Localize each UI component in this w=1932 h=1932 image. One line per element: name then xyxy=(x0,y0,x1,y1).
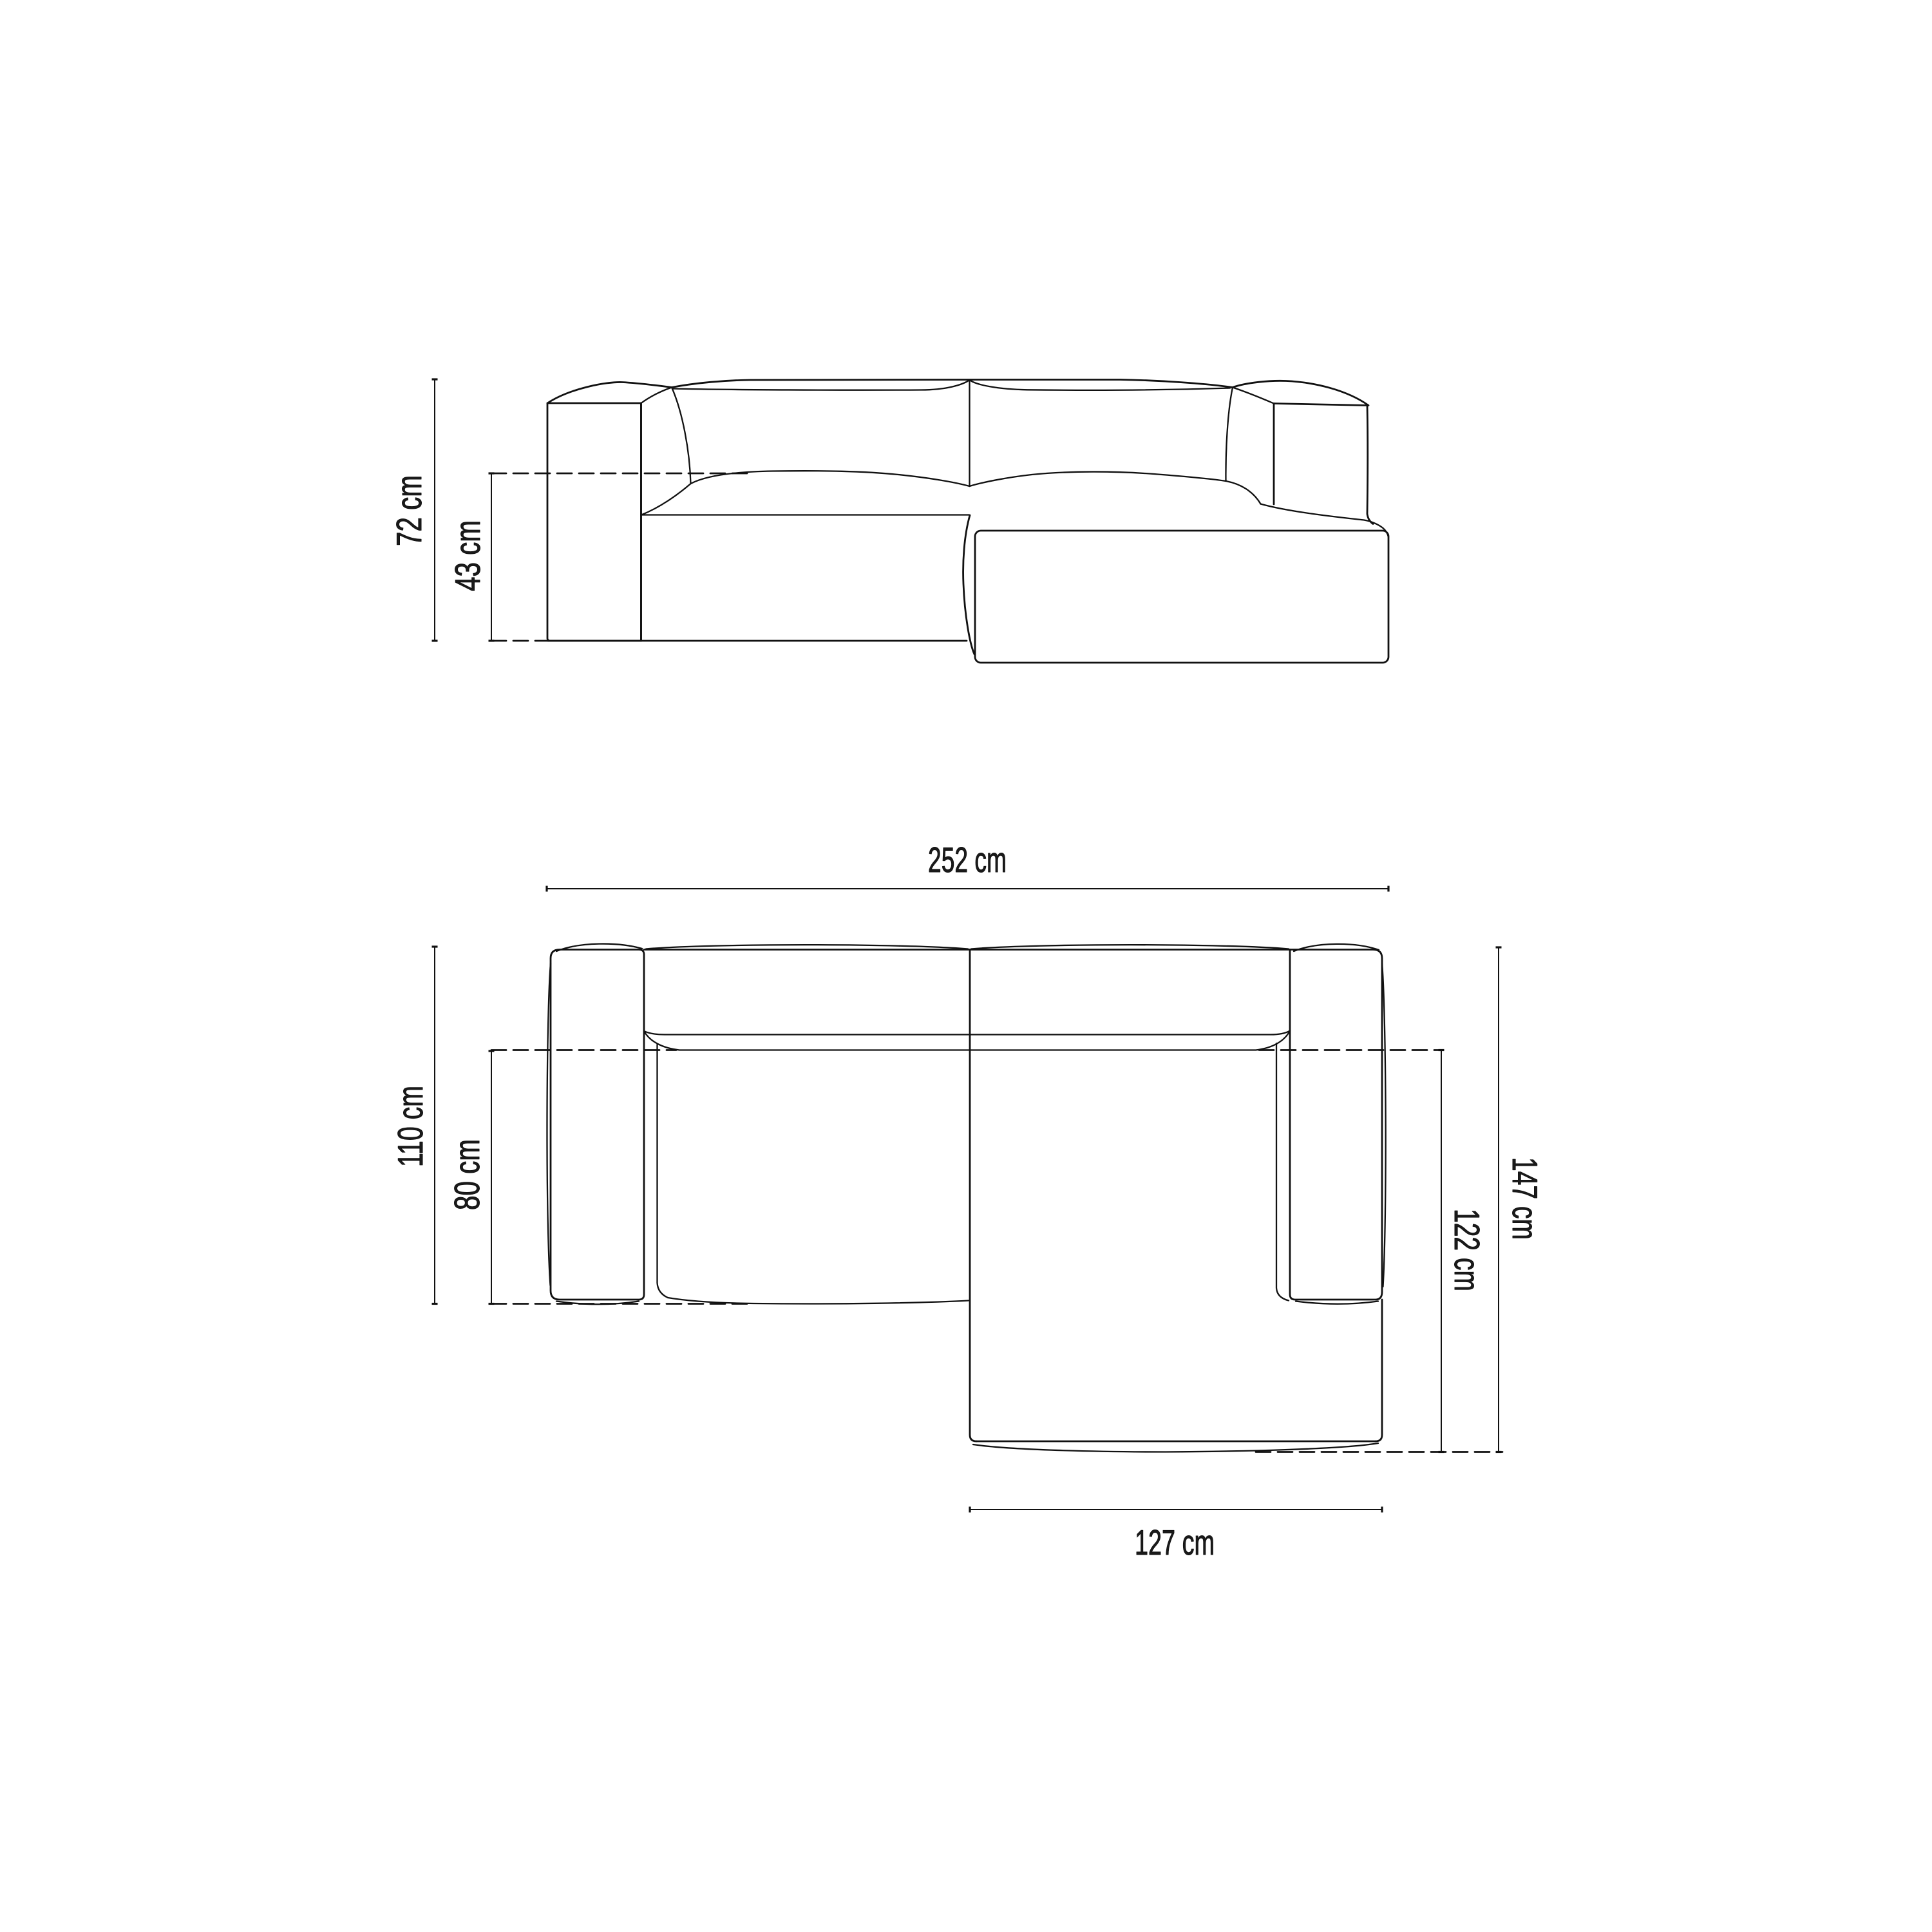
svg-text:72 cm: 72 cm xyxy=(389,475,429,546)
svg-text:122 cm: 122 cm xyxy=(1447,1209,1487,1291)
svg-text:80 cm: 80 cm xyxy=(447,1139,487,1210)
svg-text:127 cm: 127 cm xyxy=(1135,1522,1215,1562)
svg-text:252 cm: 252 cm xyxy=(928,840,1007,880)
svg-text:110 cm: 110 cm xyxy=(390,1086,430,1167)
svg-text:43 cm: 43 cm xyxy=(448,520,488,591)
svg-text:147 cm: 147 cm xyxy=(1505,1157,1545,1240)
